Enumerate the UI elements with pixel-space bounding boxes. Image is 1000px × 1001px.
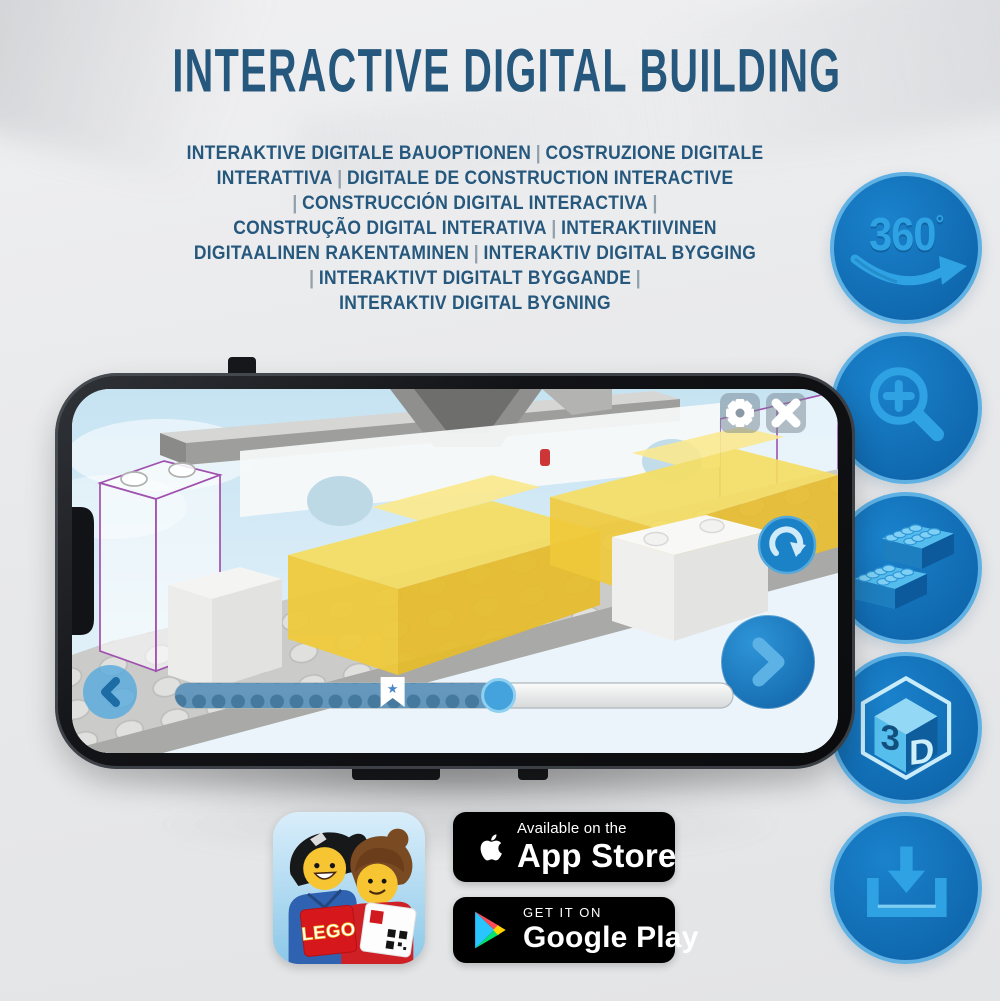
badge-360-rotation: 360°: [830, 172, 982, 324]
close-button[interactable]: [766, 393, 806, 433]
phone-frame: ★: [55, 373, 855, 769]
building-app-scene: ★: [72, 389, 838, 753]
3d-cube-icon: 3 D: [843, 665, 969, 791]
subtitle-line: INTERAKTIVE DIGITALE BAUOPTIONEN|COSTRUZ…: [93, 141, 857, 166]
lego-logo: LEGO: [299, 905, 358, 957]
subtitle-line: DIGITAALINEN RAKENTAMINEN|INTERAKTIV DIG…: [93, 241, 857, 266]
subtitle-multilang: INTERAKTIVE DIGITALE BAUOPTIONEN|COSTRUZ…: [60, 141, 890, 316]
subtitle-line: INTERAKTIV DIGITAL BYGNING: [93, 291, 857, 316]
svg-text:★: ★: [387, 682, 399, 697]
google-play-icon: [469, 909, 511, 951]
settings-button[interactable]: [720, 393, 760, 433]
app-store-name: App Store: [517, 839, 676, 874]
rotate-button[interactable]: [759, 517, 815, 573]
download-icon: [843, 825, 969, 951]
lego-brick-icon: [843, 505, 969, 631]
subtitle-line: CONSTRUÇÃO DIGITAL INTERATIVA|INTERAKTII…: [93, 216, 857, 241]
google-play-tagline: GET IT ON: [523, 906, 699, 920]
white-brick-left: [168, 567, 282, 689]
svg-text:3: 3: [881, 717, 900, 759]
lego-companion-app-icon[interactable]: LEGO: [273, 812, 425, 964]
badge-download: [830, 812, 982, 964]
gear-icon: [726, 399, 754, 427]
phone-screen: ★: [72, 389, 838, 753]
previous-step-button[interactable]: [83, 665, 137, 719]
apple-icon: [469, 824, 505, 870]
badge-360-label: 360°: [869, 205, 943, 254]
page-title: INTERACTIVE DIGITAL BUILDING: [172, 35, 841, 105]
zoom-in-icon: [846, 348, 966, 468]
app-store-badge[interactable]: Available on the App Store: [453, 812, 675, 882]
progress-thumb[interactable]: [483, 680, 515, 712]
qr-card: [360, 902, 417, 957]
red-accent-piece: [540, 449, 550, 466]
subtitle-line: |CONSTRUCCIÓN DIGITAL INTERACTIVA|: [93, 191, 857, 216]
next-step-button[interactable]: [721, 615, 815, 709]
subtitle-line: INTERATTIVA|DIGITALE DE CONSTRUCTION INT…: [93, 166, 857, 191]
subtitle-line: |INTERAKTIVT DIGITALT BYGGANDE|: [93, 266, 857, 291]
phone-notch: [72, 507, 94, 635]
google-play-badge[interactable]: GET IT ON Google Play: [453, 897, 675, 963]
app-store-tagline: Available on the: [517, 821, 676, 837]
google-play-name: Google Play: [523, 922, 699, 954]
svg-text:D: D: [909, 731, 934, 773]
